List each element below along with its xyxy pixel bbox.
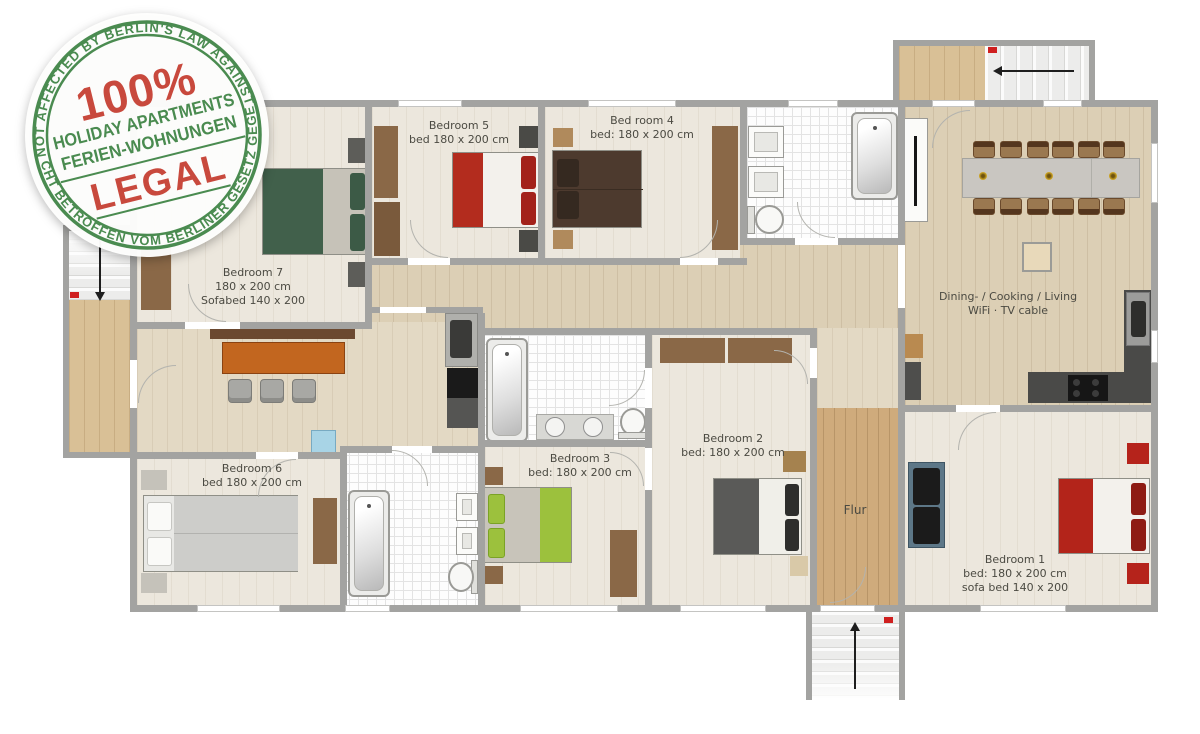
door-opening xyxy=(408,258,450,265)
wardrobe xyxy=(374,126,398,198)
stairs-arrow-line xyxy=(1002,70,1074,72)
door-opening xyxy=(380,307,426,313)
arrow-left-icon xyxy=(993,66,1002,76)
door-opening xyxy=(956,405,1000,412)
room-detail: bed: 180 x 200 cm xyxy=(962,567,1068,581)
room-name: Dining- / Cooking / Living xyxy=(939,290,1077,304)
window xyxy=(1151,330,1158,363)
bathtub xyxy=(348,490,390,597)
office-chair xyxy=(260,379,284,403)
door-opening xyxy=(645,368,652,408)
candle xyxy=(979,172,987,180)
window xyxy=(1043,100,1082,107)
pillow xyxy=(147,537,172,566)
room-name: Bedroom 2 xyxy=(681,432,785,446)
sink xyxy=(748,166,784,198)
nightstand xyxy=(1127,443,1149,464)
window xyxy=(1151,143,1158,203)
bed-seam xyxy=(553,189,643,190)
room-label-bedroom2: Bedroom 2 bed: 180 x 200 cm xyxy=(681,432,785,460)
sofa-cushion xyxy=(913,507,940,544)
tv-cabinet xyxy=(903,118,928,222)
floor-plan: Bedroom 7 180 x 200 cm Sofabed 140 x 200… xyxy=(0,0,1200,734)
dining-chair xyxy=(1000,141,1022,158)
wall xyxy=(806,612,812,700)
blanket xyxy=(714,479,759,554)
room-label-bedroom3: Bedroom 3 bed: 180 x 200 cm xyxy=(528,452,632,480)
room-name: Bedroom 6 xyxy=(202,462,302,476)
kitchenette-sink xyxy=(445,313,478,367)
room-label-bedroom7: Bedroom 7 180 x 200 cm Sofabed 140 x 200 xyxy=(201,266,305,308)
sink xyxy=(456,527,478,555)
room-label-bedroom6: Bedroom 6 bed 180 x 200 cm xyxy=(202,462,302,490)
window xyxy=(398,100,462,107)
toilet-tank xyxy=(618,432,648,439)
burner xyxy=(1092,390,1099,397)
bed-bedroom7 xyxy=(262,168,367,255)
toilet xyxy=(755,205,784,234)
candle xyxy=(1045,172,1053,180)
pillow xyxy=(350,214,365,251)
blanket xyxy=(540,488,571,562)
burner xyxy=(1073,390,1080,397)
room-detail: bed: 180 x 200 cm xyxy=(590,128,694,142)
wall xyxy=(365,107,372,322)
tv-panel xyxy=(914,136,917,206)
wall xyxy=(898,107,905,245)
sink xyxy=(748,126,784,158)
pillow xyxy=(1131,519,1146,551)
window xyxy=(680,605,766,612)
pillow xyxy=(785,519,799,551)
wall xyxy=(538,107,545,258)
nightstand xyxy=(553,230,573,249)
side-table xyxy=(1022,242,1052,272)
bed-bedroom1 xyxy=(1058,478,1150,554)
room-name: Flur xyxy=(844,503,867,517)
room-name: Bedroom 7 xyxy=(201,266,305,280)
dining-chair xyxy=(973,141,995,158)
wall xyxy=(340,446,347,605)
window xyxy=(345,605,390,612)
wall xyxy=(478,440,652,447)
door-opening xyxy=(810,348,817,378)
bed-bedroom6 xyxy=(143,495,298,572)
door-opening xyxy=(130,360,137,408)
wall xyxy=(893,40,1095,46)
window xyxy=(197,605,280,612)
wall xyxy=(130,322,372,329)
work-table xyxy=(222,342,345,374)
pillow xyxy=(557,159,579,187)
wall xyxy=(740,107,747,245)
bed-bedroom4 xyxy=(552,150,642,228)
pillow xyxy=(521,156,536,189)
bed-seam xyxy=(174,533,298,534)
wall xyxy=(898,308,905,605)
door-opening xyxy=(645,448,652,490)
dining-chair xyxy=(1052,198,1074,215)
bed-bedroom3 xyxy=(483,487,572,563)
wall xyxy=(898,405,1158,412)
wardrobe xyxy=(660,338,725,363)
room-detail: WiFi · TV cable xyxy=(939,304,1077,318)
pillow xyxy=(521,192,536,225)
room-label-flur: Flur xyxy=(844,503,867,517)
top-landing-floor xyxy=(899,46,985,100)
burner xyxy=(1092,379,1099,386)
red-marker xyxy=(988,47,997,53)
office-chair xyxy=(228,379,252,403)
nightstand xyxy=(783,451,806,472)
nightstand xyxy=(519,126,540,148)
room-detail: bed 180 x 200 cm xyxy=(202,476,302,490)
nightstand xyxy=(1127,563,1149,584)
dresser xyxy=(141,573,167,593)
window xyxy=(520,605,618,612)
nightstand xyxy=(553,128,573,147)
room-label-bedroom5: Bedroom 5 bed 180 x 200 cm xyxy=(409,119,509,147)
bathtub xyxy=(851,112,898,200)
kitchenette-stove xyxy=(447,368,478,398)
table-seam xyxy=(1091,159,1092,197)
bed-bedroom5 xyxy=(452,152,540,228)
window xyxy=(980,605,1066,612)
door-opening xyxy=(680,258,718,265)
blanket xyxy=(263,169,323,254)
stairs-arrow-line xyxy=(854,631,856,689)
round-sink xyxy=(545,417,565,437)
sink-basin xyxy=(450,320,472,358)
office-chair xyxy=(292,379,316,403)
room-name: Bed room 4 xyxy=(590,114,694,128)
bathtub xyxy=(486,338,528,442)
room-label-bedroom4: Bed room 4 bed: 180 x 200 cm xyxy=(590,114,694,142)
room-detail: sofa bed 140 x 200 xyxy=(962,581,1068,595)
red-marker xyxy=(70,292,79,298)
dining-chair xyxy=(1000,198,1022,215)
room-detail: bed: 180 x 200 cm xyxy=(681,446,785,460)
dining-chair xyxy=(1103,141,1125,158)
sink-counter xyxy=(536,414,614,440)
round-sink xyxy=(583,417,603,437)
room-detail: bed: 180 x 200 cm xyxy=(528,466,632,480)
room-name: Bedroom 3 xyxy=(528,452,632,466)
wall xyxy=(63,452,130,458)
dining-chair xyxy=(1078,198,1100,215)
nightstand xyxy=(790,556,808,576)
left-landing-floor xyxy=(69,300,130,452)
sofa-bed xyxy=(908,462,945,548)
arrow-down-icon xyxy=(95,292,105,301)
door-opening xyxy=(932,100,975,107)
door-opening xyxy=(256,452,298,459)
pillow xyxy=(785,484,799,516)
pillow xyxy=(350,173,365,210)
pillow xyxy=(488,494,505,524)
room-label-bedroom1: Bedroom 1 bed: 180 x 200 cm sofa bed 140… xyxy=(962,553,1068,595)
window xyxy=(788,100,838,107)
room-name: Bedroom 5 xyxy=(409,119,509,133)
wardrobe xyxy=(313,498,337,564)
door-opening xyxy=(898,245,905,308)
sink-basin xyxy=(1131,301,1146,337)
room-detail: 180 x 200 cm xyxy=(201,280,305,294)
dining-chair xyxy=(973,198,995,215)
room-detail: bed 180 x 200 cm xyxy=(409,133,509,147)
room-name: Bedroom 1 xyxy=(962,553,1068,567)
wall xyxy=(478,328,817,335)
door-opening xyxy=(795,238,838,245)
dining-chair xyxy=(1027,141,1049,158)
stove xyxy=(1068,375,1108,401)
door-opening xyxy=(185,322,240,329)
wall xyxy=(1089,40,1095,100)
candle xyxy=(1109,172,1117,180)
wall xyxy=(130,452,347,459)
window xyxy=(588,100,676,107)
dining-chair xyxy=(1103,198,1125,215)
dining-chair xyxy=(1027,198,1049,215)
dresser xyxy=(610,530,637,597)
sink xyxy=(456,493,478,521)
dining-chair xyxy=(1078,141,1100,158)
bed-bedroom2 xyxy=(713,478,802,555)
blanket xyxy=(453,153,483,227)
room-label-dining: Dining- / Cooking / Living WiFi · TV cab… xyxy=(939,290,1077,318)
pillow xyxy=(488,528,505,558)
nightstand xyxy=(484,566,503,584)
red-marker xyxy=(884,617,893,623)
arrow-up-icon xyxy=(850,622,860,631)
kitchen-sink xyxy=(1126,292,1150,346)
blanket xyxy=(1059,479,1093,553)
nightstand xyxy=(519,230,540,252)
kitchenette-counter xyxy=(447,398,478,428)
toilet-tank xyxy=(747,206,755,234)
flur-upper-floor xyxy=(817,328,898,408)
burner xyxy=(1073,379,1080,386)
dining-chair xyxy=(1052,141,1074,158)
legal-stamp-badge: NOT AFFECTED BY BERLIN'S LAW AGAINST NIC… xyxy=(22,10,272,260)
sofa-cushion xyxy=(913,468,940,505)
nightstand xyxy=(484,467,503,485)
wall xyxy=(478,313,485,605)
room-detail: Sofabed 140 x 200 xyxy=(201,294,305,308)
wardrobe xyxy=(374,202,400,256)
pillow xyxy=(147,502,172,531)
wall xyxy=(893,40,899,100)
pillow xyxy=(557,191,579,219)
toilet xyxy=(448,562,474,592)
pillow xyxy=(1131,483,1146,515)
dresser xyxy=(141,470,167,490)
door-opening xyxy=(820,605,875,612)
wall xyxy=(899,612,905,700)
